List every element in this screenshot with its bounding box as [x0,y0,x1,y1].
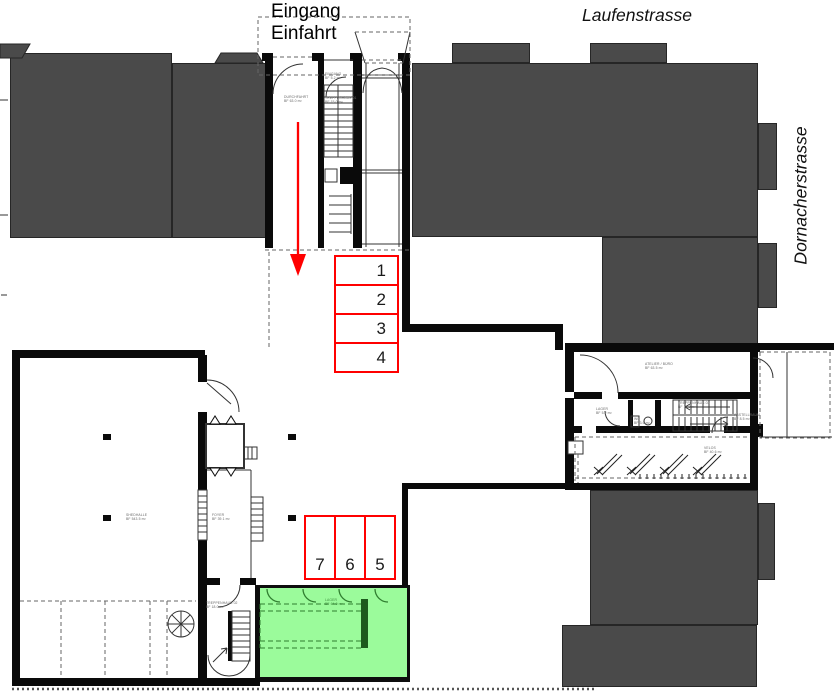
parking-spot-5[interactable]: 5 [364,515,396,580]
room-label-lager-gruen: LAGER BF 64.0 m² [325,598,343,606]
parking-spot-2[interactable]: 2 [334,284,399,315]
room-label-velos: VELOS BF 40.6 m² [704,446,722,454]
floorplan-canvas: 1 2 3 4 7 6 5 Eingang Einfahrt Laufenstr… [0,0,836,691]
entrance-block-detail [273,32,410,247]
green-room-detail [260,589,388,648]
parking-spot-3[interactable]: 3 [334,313,399,344]
parking-spot-1[interactable]: 1 [334,255,399,286]
street-label-dornacherstrasse: Dornacherstrasse [791,101,812,291]
parking-spot-6[interactable]: 6 [334,515,366,580]
parking-spots-5-7: 7 6 5 [304,515,396,580]
room-label-treppenhaus-nord: TREPPENHAUS 01 BF 15.0 m² [325,96,357,104]
room-label-lager: LAGER BF 5.2 m² [596,407,612,415]
parking-spot-4[interactable]: 4 [334,342,399,373]
room-label-treppenhaus-sued: TREPPENHAUS 02 BF 18.0 m² [206,601,238,609]
plan-linework [0,0,836,691]
parking-spot-7[interactable]: 7 [304,515,336,580]
room-label-shedhalle: SHEDHALLE BF 543.5 m² [126,513,147,521]
walls [12,53,834,686]
street-label-laufenstrasse: Laufenstrasse [582,5,692,26]
room-label-atelier: ATELIER / BÜRO BF 63.5 m² [645,362,673,370]
foyer-stripe-doors [198,490,263,541]
bike-racks [594,454,745,479]
route-arrow [290,122,306,276]
room-label-abstellraum: ABSTELLRAUM BF 8.5 m² [734,413,760,421]
parking-spots-1-4: 1 2 3 4 [334,255,399,373]
storage-stalls [20,601,196,678]
room-label-foyer: FOYER BF 39.1 m² [212,513,230,521]
room-label-eingang: EINGANG BF 5.2 m² [325,72,341,80]
entrance-annotation: Eingang Einfahrt [271,1,341,44]
room-label-wc: WC BF 3.6 m² [634,417,650,425]
room-label-durchfahrt: DURCHFAHRT BF 63.0 m² [284,95,308,103]
room-label-treppenhaus-ost: TREPPENHAUS 03 BF 19.0 m² [678,401,710,409]
